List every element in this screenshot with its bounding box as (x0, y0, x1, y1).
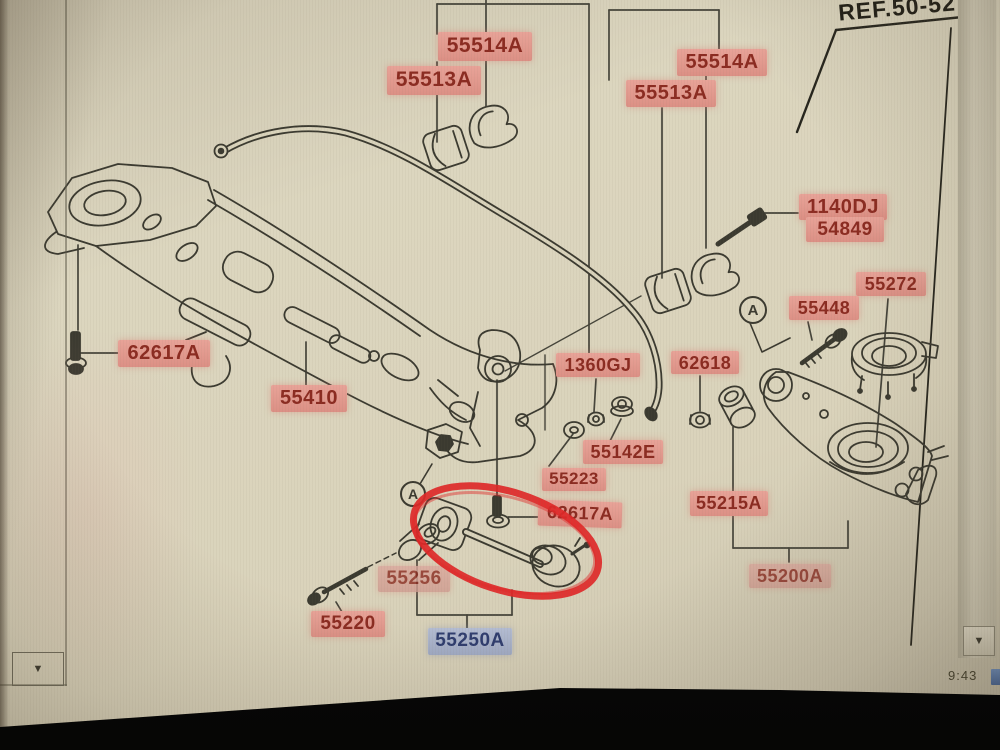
spring-seat-55272 (852, 333, 938, 399)
part-label-55410[interactable]: 55410 (271, 385, 347, 412)
part-label-54849[interactable]: 54849 (806, 217, 884, 242)
lower-arm-drawing (760, 369, 948, 504)
left-scroll-down-button[interactable]: ▼ (12, 652, 64, 686)
bolt-55448 (802, 326, 849, 367)
washer-55223 (564, 422, 584, 438)
part-label-55220[interactable]: 55220 (311, 611, 385, 637)
bushing-55215a (716, 382, 759, 431)
part-label-55513a-left[interactable]: 55513A (387, 66, 481, 95)
part-label-55223[interactable]: 55223 (542, 468, 606, 491)
bushing-55256 (395, 520, 443, 565)
right-scroll-down-button[interactable]: ▼ (963, 626, 995, 656)
status-clock: 9:43 (948, 668, 990, 683)
left-pane-divider (65, 0, 67, 686)
status-tray-icon (991, 669, 1000, 685)
stabilizer-bushing-2 (643, 267, 693, 316)
part-label-55250a[interactable]: 55250A (428, 628, 512, 655)
bolt-1140dj (718, 208, 767, 244)
part-label-55514a-left[interactable]: 55514A (438, 32, 532, 61)
part-label-62618[interactable]: 62618 (671, 351, 739, 374)
screen-photo: A A 55514A 55513A 55514A 55513A 1140DJ 5… (0, 0, 1000, 750)
bolt-62617a-mid (487, 496, 509, 528)
part-label-1360gj[interactable]: 1360GJ (556, 353, 640, 377)
stabilizer-bar-drawing (215, 129, 660, 423)
down-arrow-icon: ▼ (974, 635, 985, 647)
down-arrow-icon: ▼ (33, 663, 44, 675)
part-label-55256[interactable]: 55256 (378, 566, 450, 592)
part-label-55142e[interactable]: 55142E (583, 440, 663, 464)
nut-62618 (690, 413, 710, 428)
part-label-55514a-right[interactable]: 55514A (677, 49, 767, 76)
part-label-55200a[interactable]: 55200A (749, 564, 831, 588)
photo-edge-shadow (0, 0, 9, 750)
marker-a-right-letter: A (748, 302, 759, 319)
part-label-62617a-mid[interactable]: 62617A (538, 500, 623, 529)
ref-pointer-lines (797, 15, 982, 645)
stabilizer-bracket-1 (465, 101, 520, 153)
part-label-55448[interactable]: 55448 (789, 296, 859, 320)
stabilizer-bushing-1 (421, 124, 471, 173)
marker-a-left-letter: A (408, 486, 418, 502)
nut-1360gj (588, 413, 604, 426)
part-label-55513a-right[interactable]: 55513A (626, 80, 716, 107)
crossmember-drawing (45, 164, 556, 462)
part-label-55272[interactable]: 55272 (856, 272, 926, 296)
nut-55142e (611, 397, 633, 416)
part-label-62617a-left[interactable]: 62617A (118, 340, 210, 367)
stabilizer-bracket-2 (687, 249, 742, 301)
part-label-55215a[interactable]: 55215A (690, 491, 768, 516)
right-scrollbar-track[interactable] (958, 0, 996, 658)
